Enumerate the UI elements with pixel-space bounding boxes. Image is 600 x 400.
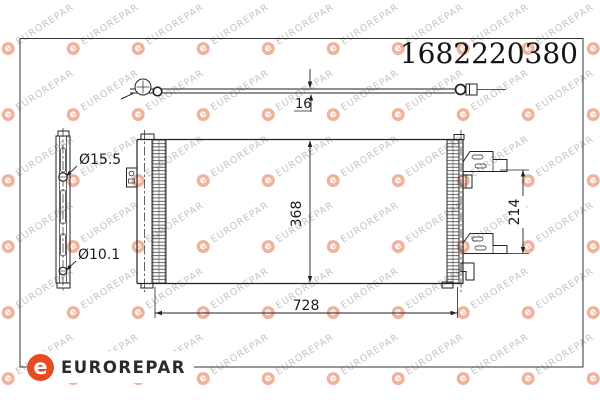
front-view [127,130,508,292]
dim-depth-label: 16 [295,97,312,112]
pipe-clip [463,175,472,188]
brand-logo: e EUROREPAR [27,351,194,383]
brand-name: EUROREPAR [61,358,186,377]
dim-core-width-label: 728 [293,298,320,314]
dim-bracket-spacing-label: 214 [507,199,523,226]
upper-bracket [463,152,507,172]
dim-depth: 16 [294,69,313,112]
dim-lower-port-label: Ø10.1 [78,247,120,263]
dim-upper-port: Ø15.5 [66,152,121,177]
fin-band-right [447,140,459,284]
dim-bracket-spacing: 214 [500,170,529,254]
top-view-left-port [153,87,162,96]
dim-core-height-label: 368 [289,201,305,228]
top-view-right-port [456,85,466,95]
dim-lower-port: Ø10.1 [66,247,120,271]
dim-core-height: 368 [289,141,312,283]
dim-core-width: 728 [155,287,458,318]
eurorepar-e-icon: e [27,354,54,381]
top-view [121,79,506,99]
dim-upper-port-label: Ø15.5 [79,152,121,168]
lower-bracket [463,234,507,254]
part-number: 1682220380 [400,37,578,70]
technical-drawing-page: eEUROREPAReEUROREPAReEUROREPAReEUROREPAR… [0,0,600,400]
fin-band-left [152,140,166,284]
